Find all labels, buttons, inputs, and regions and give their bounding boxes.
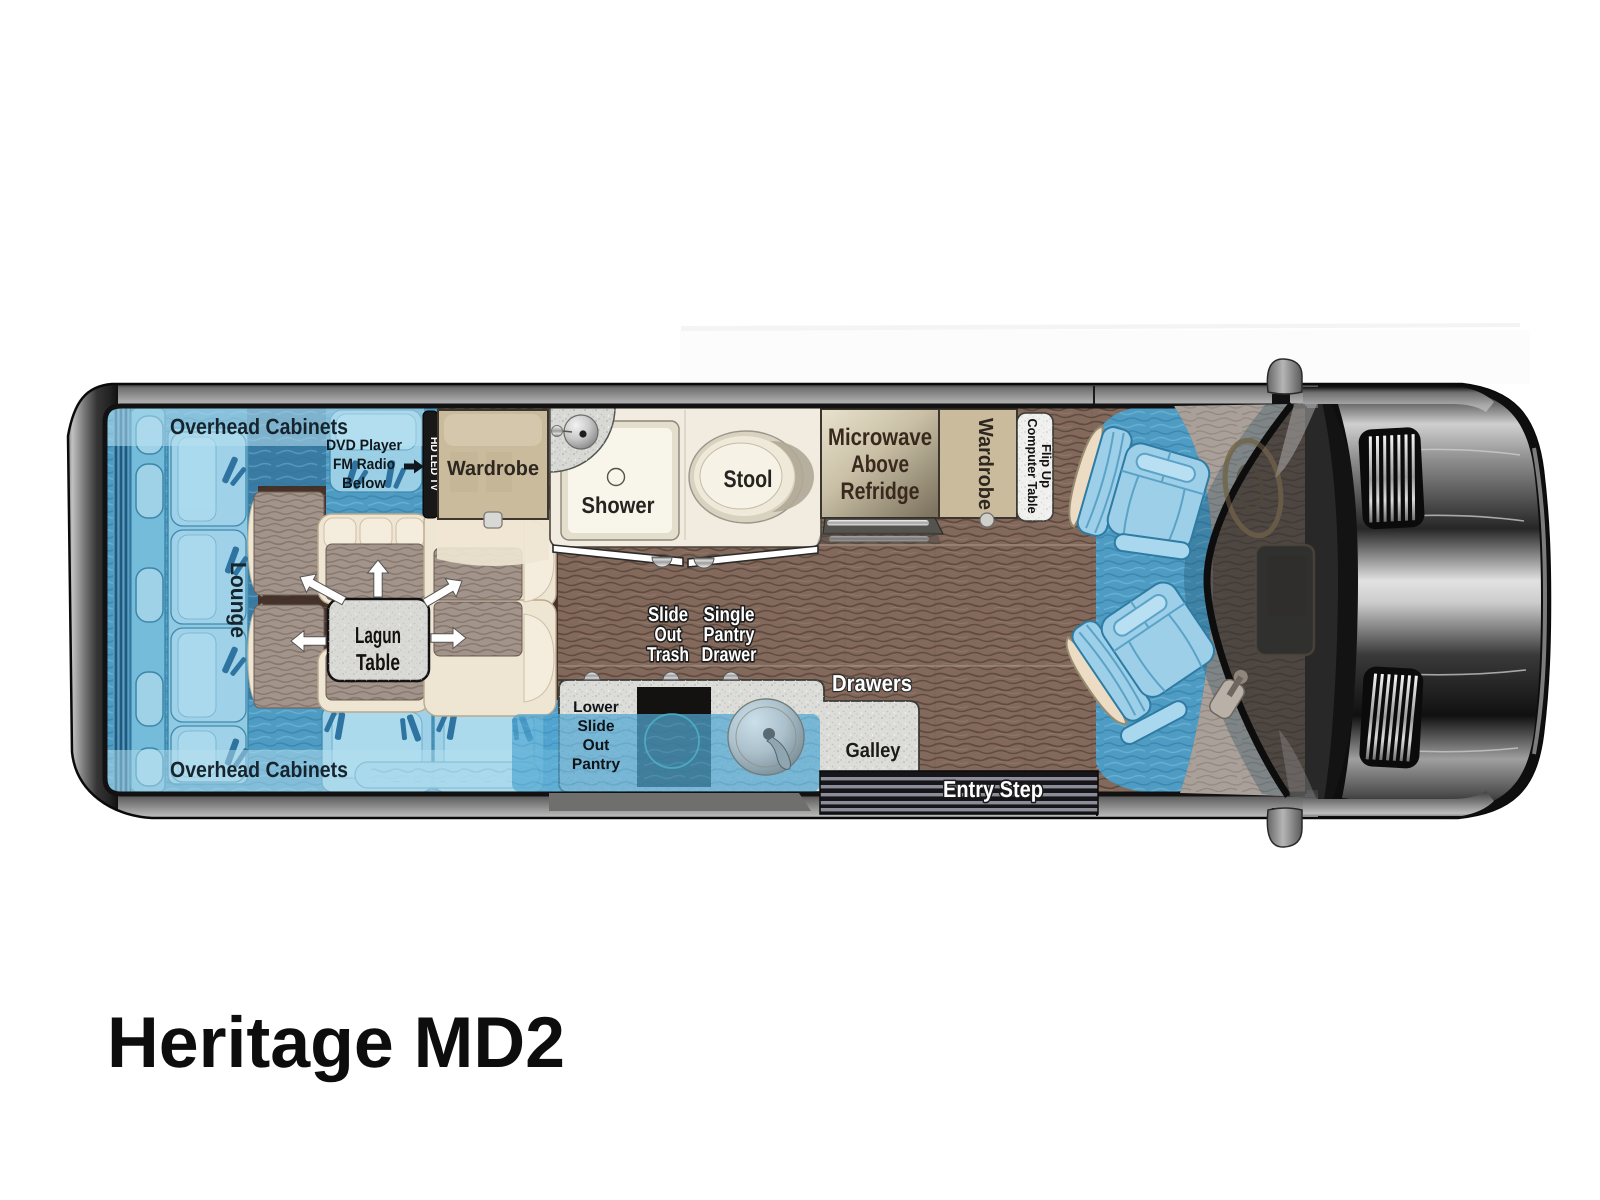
- svg-text:Lower: Lower: [573, 699, 619, 716]
- svg-text:Microwave: Microwave: [828, 424, 932, 451]
- svg-text:Drawers: Drawers: [832, 670, 912, 696]
- svg-text:Flip Up: Flip Up: [1039, 444, 1054, 488]
- svg-text:Out: Out: [583, 737, 610, 754]
- svg-text:Entry Step: Entry Step: [943, 776, 1043, 802]
- svg-text:Above: Above: [851, 451, 909, 478]
- svg-text:FM Radio: FM Radio: [333, 456, 395, 473]
- svg-text:Below: Below: [342, 475, 386, 492]
- svg-text:Wardrobe: Wardrobe: [974, 418, 997, 510]
- svg-text:Trash: Trash: [647, 644, 689, 666]
- svg-text:Wardrobe: Wardrobe: [447, 457, 539, 480]
- svg-text:Computer Table: Computer Table: [1025, 419, 1040, 514]
- svg-text:Table: Table: [356, 649, 400, 675]
- svg-text:Shower: Shower: [582, 492, 655, 518]
- svg-text:Refridge: Refridge: [841, 478, 920, 505]
- svg-text:Overhead Cabinets: Overhead Cabinets: [170, 414, 348, 439]
- svg-text:Single: Single: [704, 604, 755, 626]
- svg-text:Drawer: Drawer: [702, 644, 757, 666]
- svg-text:Lagun: Lagun: [355, 622, 401, 648]
- svg-text:Pantry: Pantry: [704, 624, 756, 646]
- svg-text:Stool: Stool: [724, 466, 773, 493]
- svg-text:Lounge: Lounge: [226, 562, 251, 638]
- svg-text:Heritage MD2: Heritage MD2: [107, 1003, 565, 1083]
- svg-text:Slide: Slide: [648, 604, 688, 626]
- svg-text:DVD Player: DVD Player: [326, 437, 402, 454]
- svg-text:Galley: Galley: [846, 739, 902, 762]
- svg-text:Overhead Cabinets: Overhead Cabinets: [170, 757, 348, 782]
- svg-text:Slide: Slide: [577, 718, 614, 735]
- svg-text:Out: Out: [655, 624, 682, 646]
- svg-text:Pantry: Pantry: [572, 756, 621, 773]
